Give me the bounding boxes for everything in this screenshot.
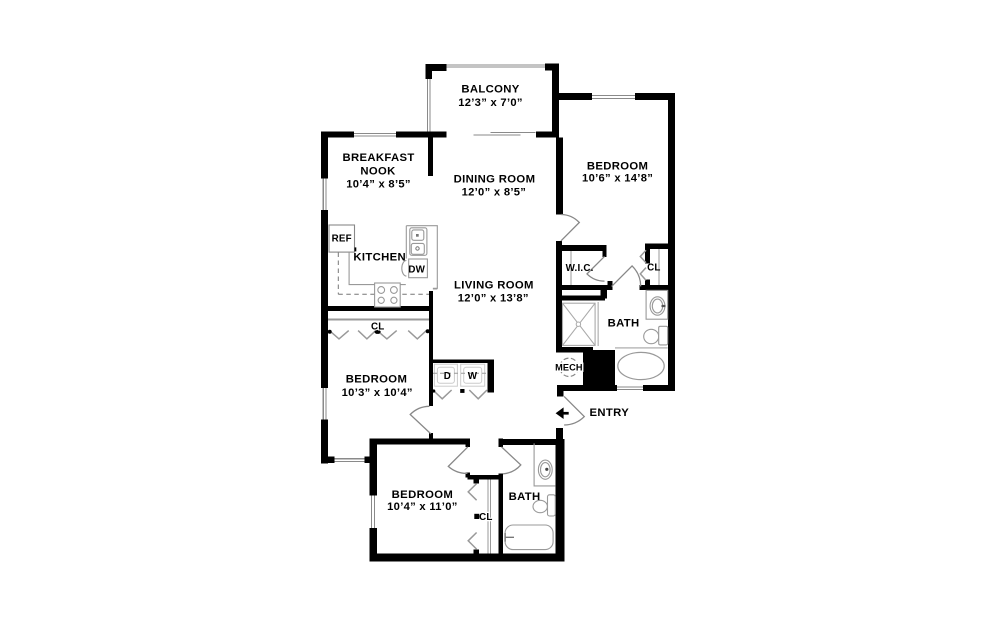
svg-text:ENTRY: ENTRY [589,407,629,419]
svg-text:BEDROOM: BEDROOM [587,161,648,173]
svg-text:10’4” x 8’5”: 10’4” x 8’5” [346,179,411,191]
svg-text:DINING ROOM: DINING ROOM [454,174,536,186]
svg-text:BALCONY: BALCONY [461,84,519,96]
svg-text:10’4” x 11’0”: 10’4” x 11’0” [387,501,457,513]
svg-text:BEDROOM: BEDROOM [392,489,453,501]
svg-text:MECH: MECH [555,363,583,373]
svg-text:BATH: BATH [509,491,541,503]
svg-text:W.I.C.: W.I.C. [566,263,594,274]
svg-text:12’3” x 7’0”: 12’3” x 7’0” [458,97,523,109]
svg-text:BATH: BATH [608,318,640,330]
svg-text:KITCHEN: KITCHEN [353,252,406,264]
svg-text:12’0” x 8’5”: 12’0” x 8’5” [462,186,527,198]
svg-text:10’6” x 14’8”: 10’6” x 14’8” [582,173,653,185]
svg-text:CL: CL [647,262,660,273]
svg-text:D: D [444,371,451,382]
svg-text:12’0” x 13’8”: 12’0” x 13’8” [458,292,529,304]
svg-text:LIVING ROOM: LIVING ROOM [454,280,534,292]
svg-text:BREAKFAST: BREAKFAST [342,152,414,164]
svg-text:CL: CL [371,321,384,332]
svg-text:NOOK: NOOK [360,166,396,178]
svg-text:CL: CL [479,512,492,523]
svg-text:DW: DW [408,265,425,276]
svg-text:10’3” x 10’4”: 10’3” x 10’4” [342,387,413,399]
svg-text:W: W [468,371,478,382]
svg-text:BEDROOM: BEDROOM [346,374,407,386]
svg-text:REF: REF [332,234,352,245]
